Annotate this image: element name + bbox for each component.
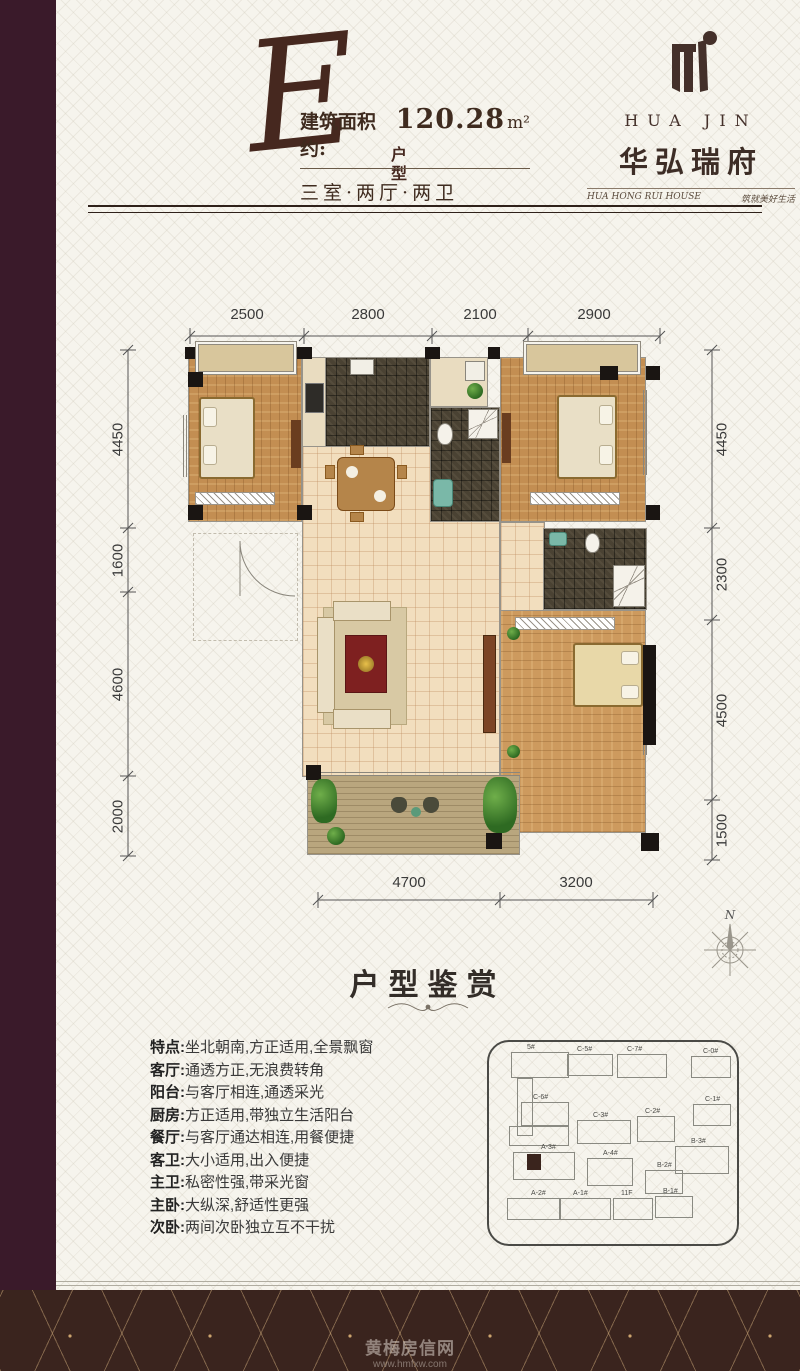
brand-tagline-cn: 筑就美好生活 xyxy=(741,192,795,205)
feature-row: 厨房:方正适用,带独立生活阳台 xyxy=(150,1108,470,1125)
feature-row: 特点:坐北朝南,方正适用,全景飘窗 xyxy=(150,1040,470,1057)
area-unit: m² xyxy=(507,113,530,133)
dim-top-4: 2900 xyxy=(564,306,624,323)
building-label: A-2# xyxy=(531,1190,546,1198)
feature-row: 主卫:私密性强,带采光窗 xyxy=(150,1175,470,1192)
plant-icon xyxy=(483,777,517,833)
tv-cabinet-icon xyxy=(483,635,496,733)
feature-row: 主卧:大纵深,舒适性更强 xyxy=(150,1198,470,1215)
brand-tagline-en: HUA HONG RUI HOUSE xyxy=(587,192,701,205)
building-outline xyxy=(521,1102,569,1126)
bed-icon xyxy=(199,397,255,479)
dim-top-2: 2800 xyxy=(338,306,398,323)
brand-tagline: HUA HONG RUI HOUSE 筑就美好生活 xyxy=(585,192,797,205)
decorative-side-image xyxy=(0,0,56,1290)
feature-text: 两间次卧独立互不干扰 xyxy=(185,1220,335,1237)
building-label: C-6# xyxy=(533,1094,548,1102)
dim-right-3: 4500 xyxy=(714,681,731,741)
window-balcony xyxy=(307,770,520,776)
dim-right-4: 1500 xyxy=(714,801,731,861)
building-label: A-1# xyxy=(573,1190,588,1198)
feature-text: 方正适用,带独立生活阳台 xyxy=(185,1108,354,1125)
coffee-table-icon xyxy=(345,635,387,693)
building-outline xyxy=(511,1052,569,1078)
building-outline xyxy=(613,1198,653,1220)
dim-right-2: 2300 xyxy=(714,545,731,605)
toilet-icon xyxy=(585,533,600,553)
feature-label: 主卧: xyxy=(150,1198,185,1215)
sofa-icon xyxy=(333,709,391,729)
balcony-chair-icon xyxy=(423,797,439,813)
feature-text: 大小适用,出入便捷 xyxy=(185,1153,309,1170)
wall-block xyxy=(486,833,502,849)
building-label: A-3# xyxy=(541,1144,556,1152)
feature-list: 特点:坐北朝南,方正适用,全景飘窗 客厅:通透方正,无浪费转角 阳台:与客厅相连… xyxy=(150,1040,470,1243)
building-label: 5# xyxy=(527,1044,535,1052)
plant-icon xyxy=(311,779,337,823)
appreciation-title: 户型鉴赏 xyxy=(55,960,800,1004)
building-label: C-7# xyxy=(627,1046,642,1054)
wardrobe-icon xyxy=(530,492,620,505)
feature-label: 特点: xyxy=(150,1040,185,1057)
building-label: 11F xyxy=(621,1190,633,1198)
feature-row: 客卫:大小适用,出入便捷 xyxy=(150,1153,470,1170)
window-bedroom-2-right xyxy=(643,390,649,475)
bay-window-bedroom-1 xyxy=(195,341,297,375)
feature-label: 客卫: xyxy=(150,1153,185,1170)
building-outline xyxy=(637,1116,675,1142)
highlighted-building xyxy=(527,1154,541,1170)
dim-left-4: 2000 xyxy=(110,787,127,847)
wardrobe-icon xyxy=(515,617,615,630)
building-label: C-2# xyxy=(645,1108,660,1116)
floor-plan xyxy=(185,345,661,861)
building-label: C-3# xyxy=(593,1112,608,1120)
building-outline xyxy=(577,1120,631,1144)
building-label: A-4# xyxy=(603,1150,618,1158)
feature-text: 坐北朝南,方正适用,全景飘窗 xyxy=(185,1040,373,1057)
wardrobe-icon xyxy=(195,492,275,505)
building-label: B-1# xyxy=(663,1188,678,1196)
area-line: 建筑面积约:120.28m² xyxy=(300,104,530,169)
sofa-icon xyxy=(333,601,391,621)
wall-block xyxy=(646,505,660,520)
room-hallway xyxy=(500,522,545,612)
feature-row: 次卧:两间次卧独立互不干扰 xyxy=(150,1220,470,1237)
feature-label: 次卧: xyxy=(150,1220,185,1237)
brand-divider xyxy=(587,188,795,189)
tv-cabinet-icon xyxy=(502,413,511,463)
feature-row: 客厅:通透方正,无浪费转角 xyxy=(150,1063,470,1080)
compass-n-label: N xyxy=(700,908,760,922)
dim-bottom-1: 4700 xyxy=(379,874,439,891)
wall-block xyxy=(188,372,203,387)
dining-table-icon xyxy=(337,457,395,511)
room-kitchen xyxy=(325,357,430,447)
wall-block xyxy=(488,347,500,359)
bathtub-icon xyxy=(433,479,453,507)
bed-icon xyxy=(557,395,617,479)
bay-window-bedroom-2 xyxy=(523,341,641,375)
chair-icon xyxy=(350,445,364,455)
building-outline xyxy=(513,1152,575,1180)
brand-name-cn: 华弘瑞府 xyxy=(585,139,797,181)
building-label: C-0# xyxy=(703,1048,718,1056)
brand-logo-icon xyxy=(656,28,726,104)
brand-block: HUA JIN 华弘瑞府 HUA HONG RUI HOUSE 筑就美好生活 xyxy=(585,28,797,205)
bath-sink-icon xyxy=(549,532,567,546)
common-area-outline xyxy=(193,533,298,641)
tv-cabinet-icon xyxy=(291,420,301,468)
feature-row: 阳台:与客厅相连,通透采光 xyxy=(150,1085,470,1102)
wall-block xyxy=(185,347,195,359)
building-outline xyxy=(693,1104,731,1126)
shower-icon xyxy=(613,565,645,607)
wall-block xyxy=(425,347,440,359)
dim-left-1: 4450 xyxy=(110,410,127,470)
layout-description: 三室·两厅·两卫 xyxy=(300,178,530,205)
wall-block xyxy=(600,366,618,380)
feature-label: 主卫: xyxy=(150,1175,185,1192)
area-label: 建筑面积约: xyxy=(300,107,396,161)
stove-icon xyxy=(305,383,324,413)
wall-block xyxy=(297,347,312,359)
building-outline xyxy=(587,1158,633,1186)
plant-icon xyxy=(467,383,483,399)
flourish-icon xyxy=(55,1000,800,1019)
watermark-site-name: 黄梅房信网 xyxy=(320,1334,500,1359)
building-outline xyxy=(655,1196,693,1218)
plant-icon xyxy=(507,745,520,758)
wall-block xyxy=(188,505,203,520)
window-bedroom-1-left xyxy=(183,415,189,477)
building-outline xyxy=(509,1126,569,1146)
kitchen-sink-icon xyxy=(350,359,374,375)
wall-block xyxy=(641,833,659,851)
watermark: 黄梅房信网 www.hmfxw.com xyxy=(320,1334,500,1370)
building-outline xyxy=(691,1056,731,1078)
dim-top-3: 2100 xyxy=(450,306,510,323)
feature-label: 餐厅: xyxy=(150,1130,185,1147)
building-outline xyxy=(675,1146,729,1174)
building-label: B-3# xyxy=(691,1138,706,1146)
wall-block xyxy=(297,505,312,520)
feature-label: 阳台: xyxy=(150,1085,185,1102)
bed-icon xyxy=(573,643,643,707)
balcony-table-icon xyxy=(411,807,421,817)
site-plan: 5# C-5# C-7# C-0# C-6# C-1# C-3# C-2# B-… xyxy=(487,1040,739,1246)
feature-text: 与客厅相连,通透采光 xyxy=(185,1085,324,1102)
chair-icon xyxy=(397,465,407,479)
dim-left-3: 4600 xyxy=(110,655,127,715)
feature-label: 客厅: xyxy=(150,1063,185,1080)
dim-top-1: 2500 xyxy=(217,306,277,323)
toilet-icon xyxy=(437,423,453,445)
building-outline xyxy=(559,1198,611,1220)
header-rule xyxy=(88,205,762,213)
plant-icon xyxy=(327,827,345,845)
building-label: C-1# xyxy=(705,1096,720,1104)
washer-icon xyxy=(465,361,485,381)
brand-name-en: HUA JIN xyxy=(585,111,797,130)
feature-text: 大纵深,舒适性更强 xyxy=(185,1198,309,1215)
building-outline xyxy=(617,1054,667,1078)
feature-row: 餐厅:与客厅通达相连,用餐便捷 xyxy=(150,1130,470,1147)
wall-block xyxy=(646,366,660,380)
chair-icon xyxy=(325,465,335,479)
chair-icon xyxy=(350,512,364,522)
pre-footer-rule xyxy=(56,1281,800,1286)
shower-icon xyxy=(468,409,498,439)
building-outline xyxy=(507,1198,561,1220)
wall-block xyxy=(306,765,321,780)
sofa-icon xyxy=(317,617,335,713)
feature-text: 通透方正,无浪费转角 xyxy=(185,1063,324,1080)
area-block: 建筑面积约:120.28m² 三室·两厅·两卫 xyxy=(300,104,530,205)
watermark-site-url: www.hmfxw.com xyxy=(320,1359,500,1370)
dim-right-1: 4450 xyxy=(714,410,731,470)
dim-left-2: 1600 xyxy=(110,531,127,591)
wall-block xyxy=(643,645,656,745)
dim-bottom-2: 3200 xyxy=(546,874,606,891)
plant-icon xyxy=(507,627,520,640)
balcony-chair-icon xyxy=(391,797,407,813)
building-label: B-2# xyxy=(657,1162,672,1170)
building-label: C-5# xyxy=(577,1046,592,1054)
building-outline xyxy=(567,1054,613,1076)
area-value: 120.28 xyxy=(396,104,505,135)
feature-text: 私密性强,带采光窗 xyxy=(185,1175,309,1192)
feature-label: 厨房: xyxy=(150,1108,185,1125)
feature-text: 与客厅通达相连,用餐便捷 xyxy=(185,1130,354,1147)
